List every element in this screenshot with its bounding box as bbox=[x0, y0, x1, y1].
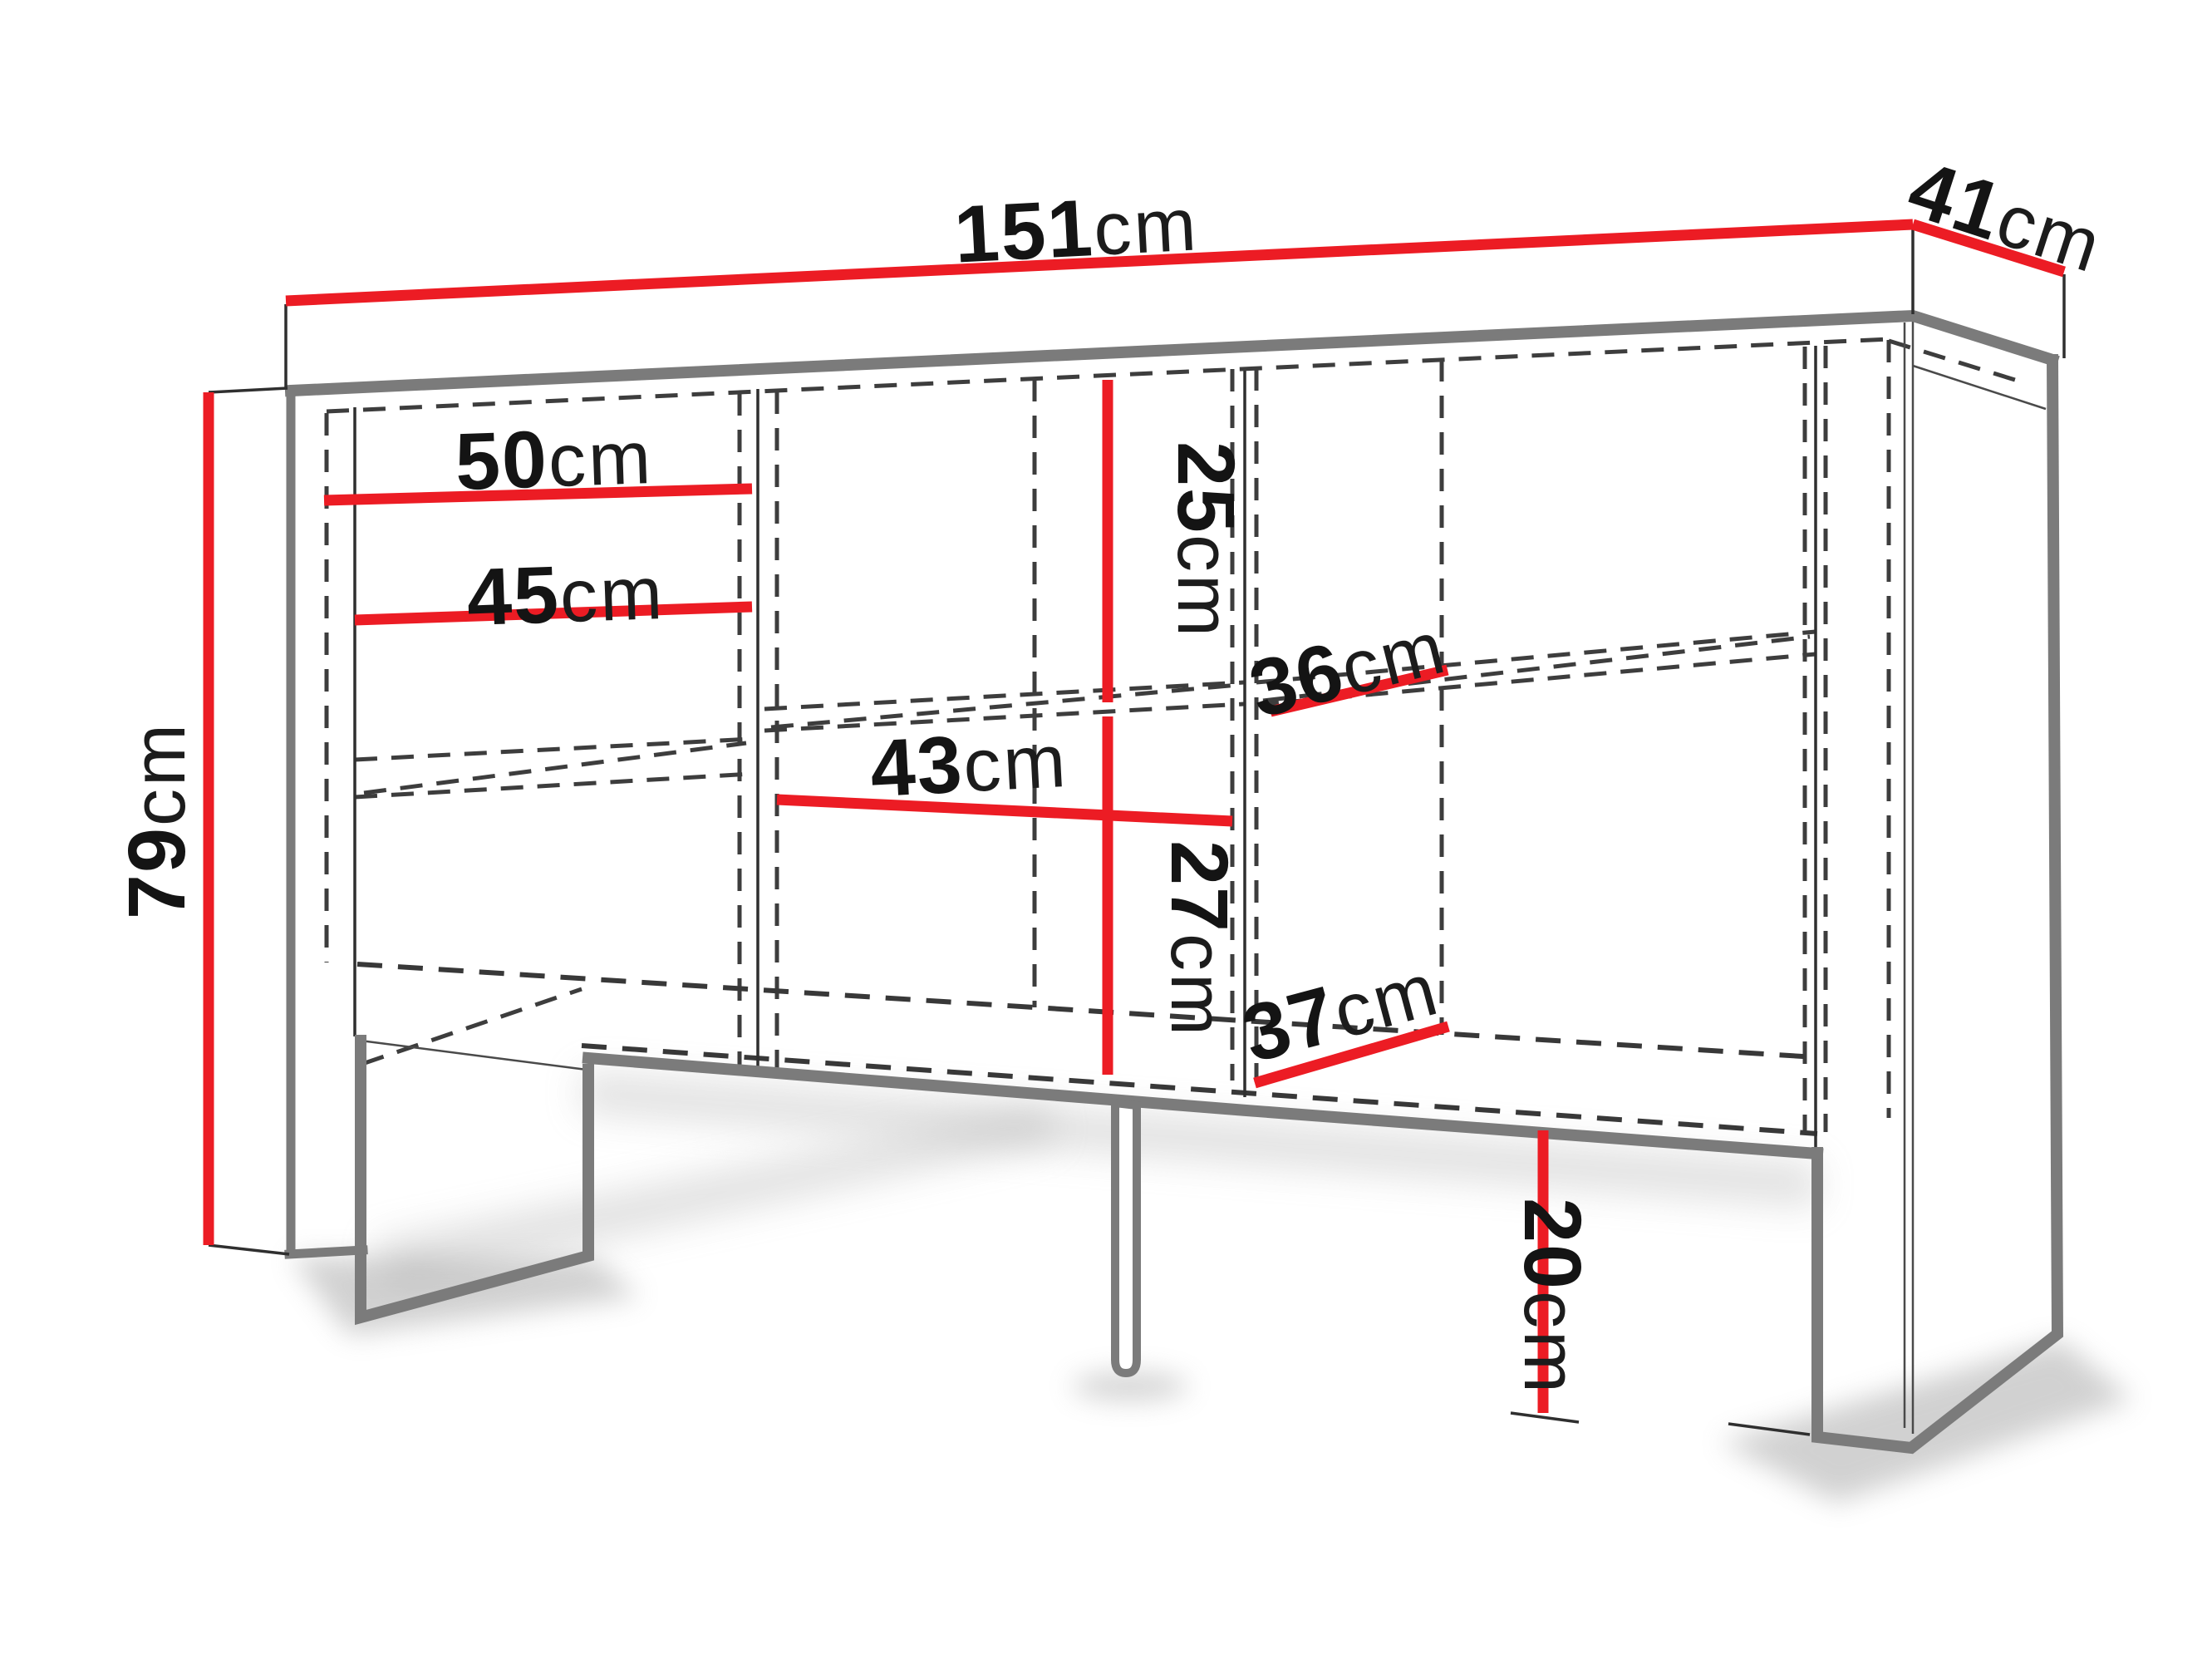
center-leg-shape bbox=[1115, 1103, 1137, 1373]
shadow-sweep-left bbox=[370, 1105, 1055, 1284]
diagram-stage: 151cm 41cm 79cm 50cm 45cm 25cm 43cm 27cm… bbox=[0, 0, 2212, 1659]
label-middle-opening-width: 43cm bbox=[868, 713, 1070, 814]
label-overall-width: 151cm bbox=[952, 176, 1201, 279]
center-leg bbox=[1115, 1103, 1137, 1373]
ext-height-bottom bbox=[209, 1245, 289, 1254]
left-leg-top-edge bbox=[361, 1041, 587, 1070]
ext-height-top bbox=[209, 388, 288, 392]
label-overall-height: 79cm bbox=[111, 721, 202, 919]
label-left-section-width: 50cm bbox=[454, 410, 655, 507]
label-left-opening-width: 45cm bbox=[465, 545, 666, 642]
shadow-center-leg bbox=[1072, 1373, 1188, 1400]
bottom-left-diag bbox=[362, 989, 582, 1064]
top-front-edge bbox=[291, 316, 2052, 391]
shadow-right-leg bbox=[1720, 1340, 2132, 1503]
label-lower-inner-height: 27cm bbox=[1154, 840, 1245, 1038]
label-upper-shelf-depth: 36cm bbox=[1241, 599, 1454, 735]
sideboard-dimension-diagram: 151cm 41cm 79cm 50cm 45cm 25cm 43cm 27cm… bbox=[0, 0, 2212, 1659]
right-top-inner bbox=[1913, 366, 2046, 409]
right-side-and-leg bbox=[1817, 360, 2057, 1448]
shadow-left-leg bbox=[291, 1257, 640, 1335]
label-leg-height: 20cm bbox=[1507, 1198, 1598, 1396]
label-upper-inner-height: 25cm bbox=[1161, 441, 1251, 639]
ext-leg-bottom bbox=[1511, 1413, 1579, 1422]
bottom-back-edge bbox=[357, 964, 1816, 1057]
left-strip-bottom bbox=[289, 1250, 363, 1254]
label-overall-depth: 41cm bbox=[1898, 143, 2114, 290]
